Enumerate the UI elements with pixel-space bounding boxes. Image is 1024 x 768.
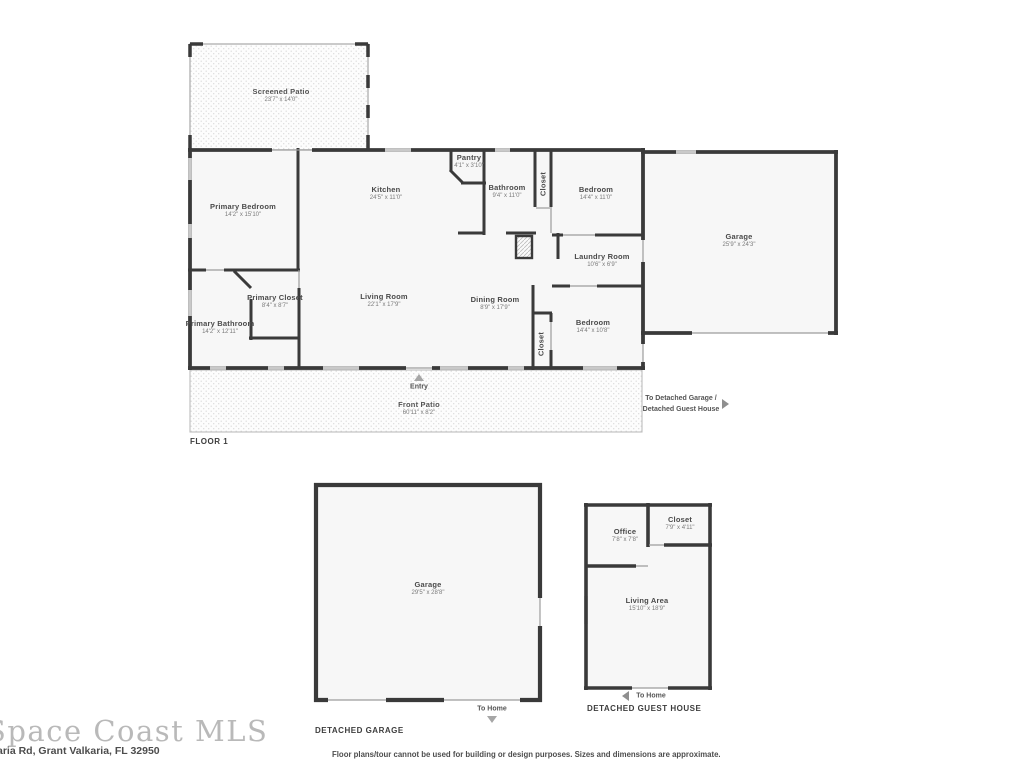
floorplan-drawing: [0, 0, 1024, 768]
room-label-dining-room: Dining Room 8'9" x 17'9": [471, 295, 520, 313]
room-label-living-room: Living Room 22'1" x 17'9": [360, 292, 408, 310]
room-name: Office: [612, 527, 638, 536]
room-dims: 25'9" x 24'3": [723, 242, 756, 250]
room-dims: 15'10" x 18'9": [626, 606, 669, 614]
room-dims: 24'5" x 11'0": [370, 195, 402, 203]
room-name: Garage: [723, 232, 756, 241]
fixture-hatch: [516, 236, 532, 258]
room-label-guesthouse-closet: Closet 7'9" x 4'11": [665, 515, 694, 533]
disclaimer-text: Floor plans/tour cannot be used for buil…: [332, 750, 721, 759]
room-dims: 7'8" x 7'8": [612, 537, 638, 545]
down-arrow-icon: [487, 716, 497, 723]
room-name: Primary Bedroom: [210, 202, 276, 211]
room-dims: 4'1" x 3'10": [454, 163, 484, 171]
room-name: Primary Closet: [247, 293, 303, 302]
to-home-garage-label: To Home: [477, 703, 506, 714]
detached-garage-title: DETACHED GARAGE: [315, 726, 404, 735]
room-name: Closet: [665, 515, 694, 524]
room-name: Closet: [538, 172, 547, 196]
room-dims: 8'4" x 8'7": [247, 303, 303, 311]
room-dims: 7'9" x 4'11": [665, 525, 694, 533]
room-dims: 60'11" x 8'2": [398, 410, 440, 418]
detached-guest-house-title: DETACHED GUEST HOUSE: [587, 704, 701, 713]
to-detached-line2: Detached Guest House: [643, 404, 720, 415]
room-label-primary-closet: Primary Closet 8'4" x 8'7": [247, 293, 303, 311]
room-name: Bedroom: [579, 185, 613, 194]
room-label-detached-garage: Garage 29'5" x 28'8": [412, 580, 445, 598]
room-dims: 14'4" x 10'8": [576, 328, 610, 336]
room-name: Dining Room: [471, 295, 520, 304]
room-label-closet-bedroom: Closet: [536, 332, 545, 356]
room-name: Pantry: [454, 153, 484, 162]
room-name: Living Room: [360, 292, 408, 301]
room-dims: 14'2" x 15'10": [210, 212, 276, 220]
floorplan-page: Screened Patio 23'7" x 14'0" Primary Bed…: [0, 0, 1024, 768]
room-dims: 9'4" x 11'0": [488, 193, 525, 201]
room-name: Screened Patio: [253, 87, 310, 96]
room-name: Living Area: [626, 596, 669, 605]
right-arrow-icon: [722, 399, 729, 409]
room-label-pantry: Pantry 4'1" x 3'10": [454, 153, 484, 171]
room-label-bathroom: Bathroom 9'4" x 11'0": [488, 183, 525, 201]
room-dims: 10'6" x 6'9": [574, 262, 629, 270]
room-name: Primary Bathroom: [186, 319, 255, 328]
room-label-primary-bathroom: Primary Bathroom 14'2" x 12'11": [186, 319, 255, 337]
room-fills: [190, 44, 836, 700]
room-dims: 22'1" x 17'9": [360, 302, 408, 310]
room-label-laundry-room: Laundry Room 10'6" x 6'9": [574, 252, 629, 270]
to-home-guesthouse-label: To Home: [636, 690, 665, 701]
room-name: Garage: [412, 580, 445, 589]
room-dims: 8'9" x 17'9": [471, 305, 520, 313]
room-name: Bathroom: [488, 183, 525, 192]
room-label-screened-patio: Screened Patio 23'7" x 14'0": [253, 87, 310, 105]
room-name: Laundry Room: [574, 252, 629, 261]
room-label-bedroom-south: Bedroom 14'4" x 10'8": [576, 318, 610, 336]
room-dims: 23'7" x 14'0": [253, 97, 310, 105]
room-label-living-area: Living Area 15'10" x 18'9": [626, 596, 669, 614]
room-label-attached-garage: Garage 25'9" x 24'3": [723, 232, 756, 250]
floor1-title: FLOOR 1: [190, 437, 228, 446]
room-label-office: Office 7'8" x 7'8": [612, 527, 638, 545]
left-arrow-icon: [622, 691, 629, 701]
entry-label: Entry: [410, 381, 428, 392]
room-name: Kitchen: [370, 185, 402, 194]
room-label-front-patio: Front Patio 60'11" x 8'2": [398, 400, 440, 418]
room-dims: 14'4" x 11'0": [579, 195, 613, 203]
room-name: Bedroom: [576, 318, 610, 327]
room-label-bedroom-north: Bedroom 14'4" x 11'0": [579, 185, 613, 203]
to-detached-line1: To Detached Garage /: [643, 393, 720, 404]
property-address: aria Rd, Grant Valkaria, FL 32950: [0, 745, 160, 757]
room-name: Closet: [536, 332, 545, 356]
room-label-primary-bedroom: Primary Bedroom 14'2" x 15'10": [210, 202, 276, 220]
room-label-kitchen: Kitchen 24'5" x 11'0": [370, 185, 402, 203]
mls-watermark: Space Coast MLS: [0, 714, 268, 748]
to-detached-note: To Detached Garage / Detached Guest Hous…: [643, 393, 720, 415]
entry-arrow-icon: [414, 374, 424, 381]
room-label-closet-hall: Closet: [538, 172, 547, 196]
room-name: Front Patio: [398, 400, 440, 409]
room-dims: 14'2" x 12'11": [186, 329, 255, 337]
room-dims: 29'5" x 28'8": [412, 590, 445, 598]
